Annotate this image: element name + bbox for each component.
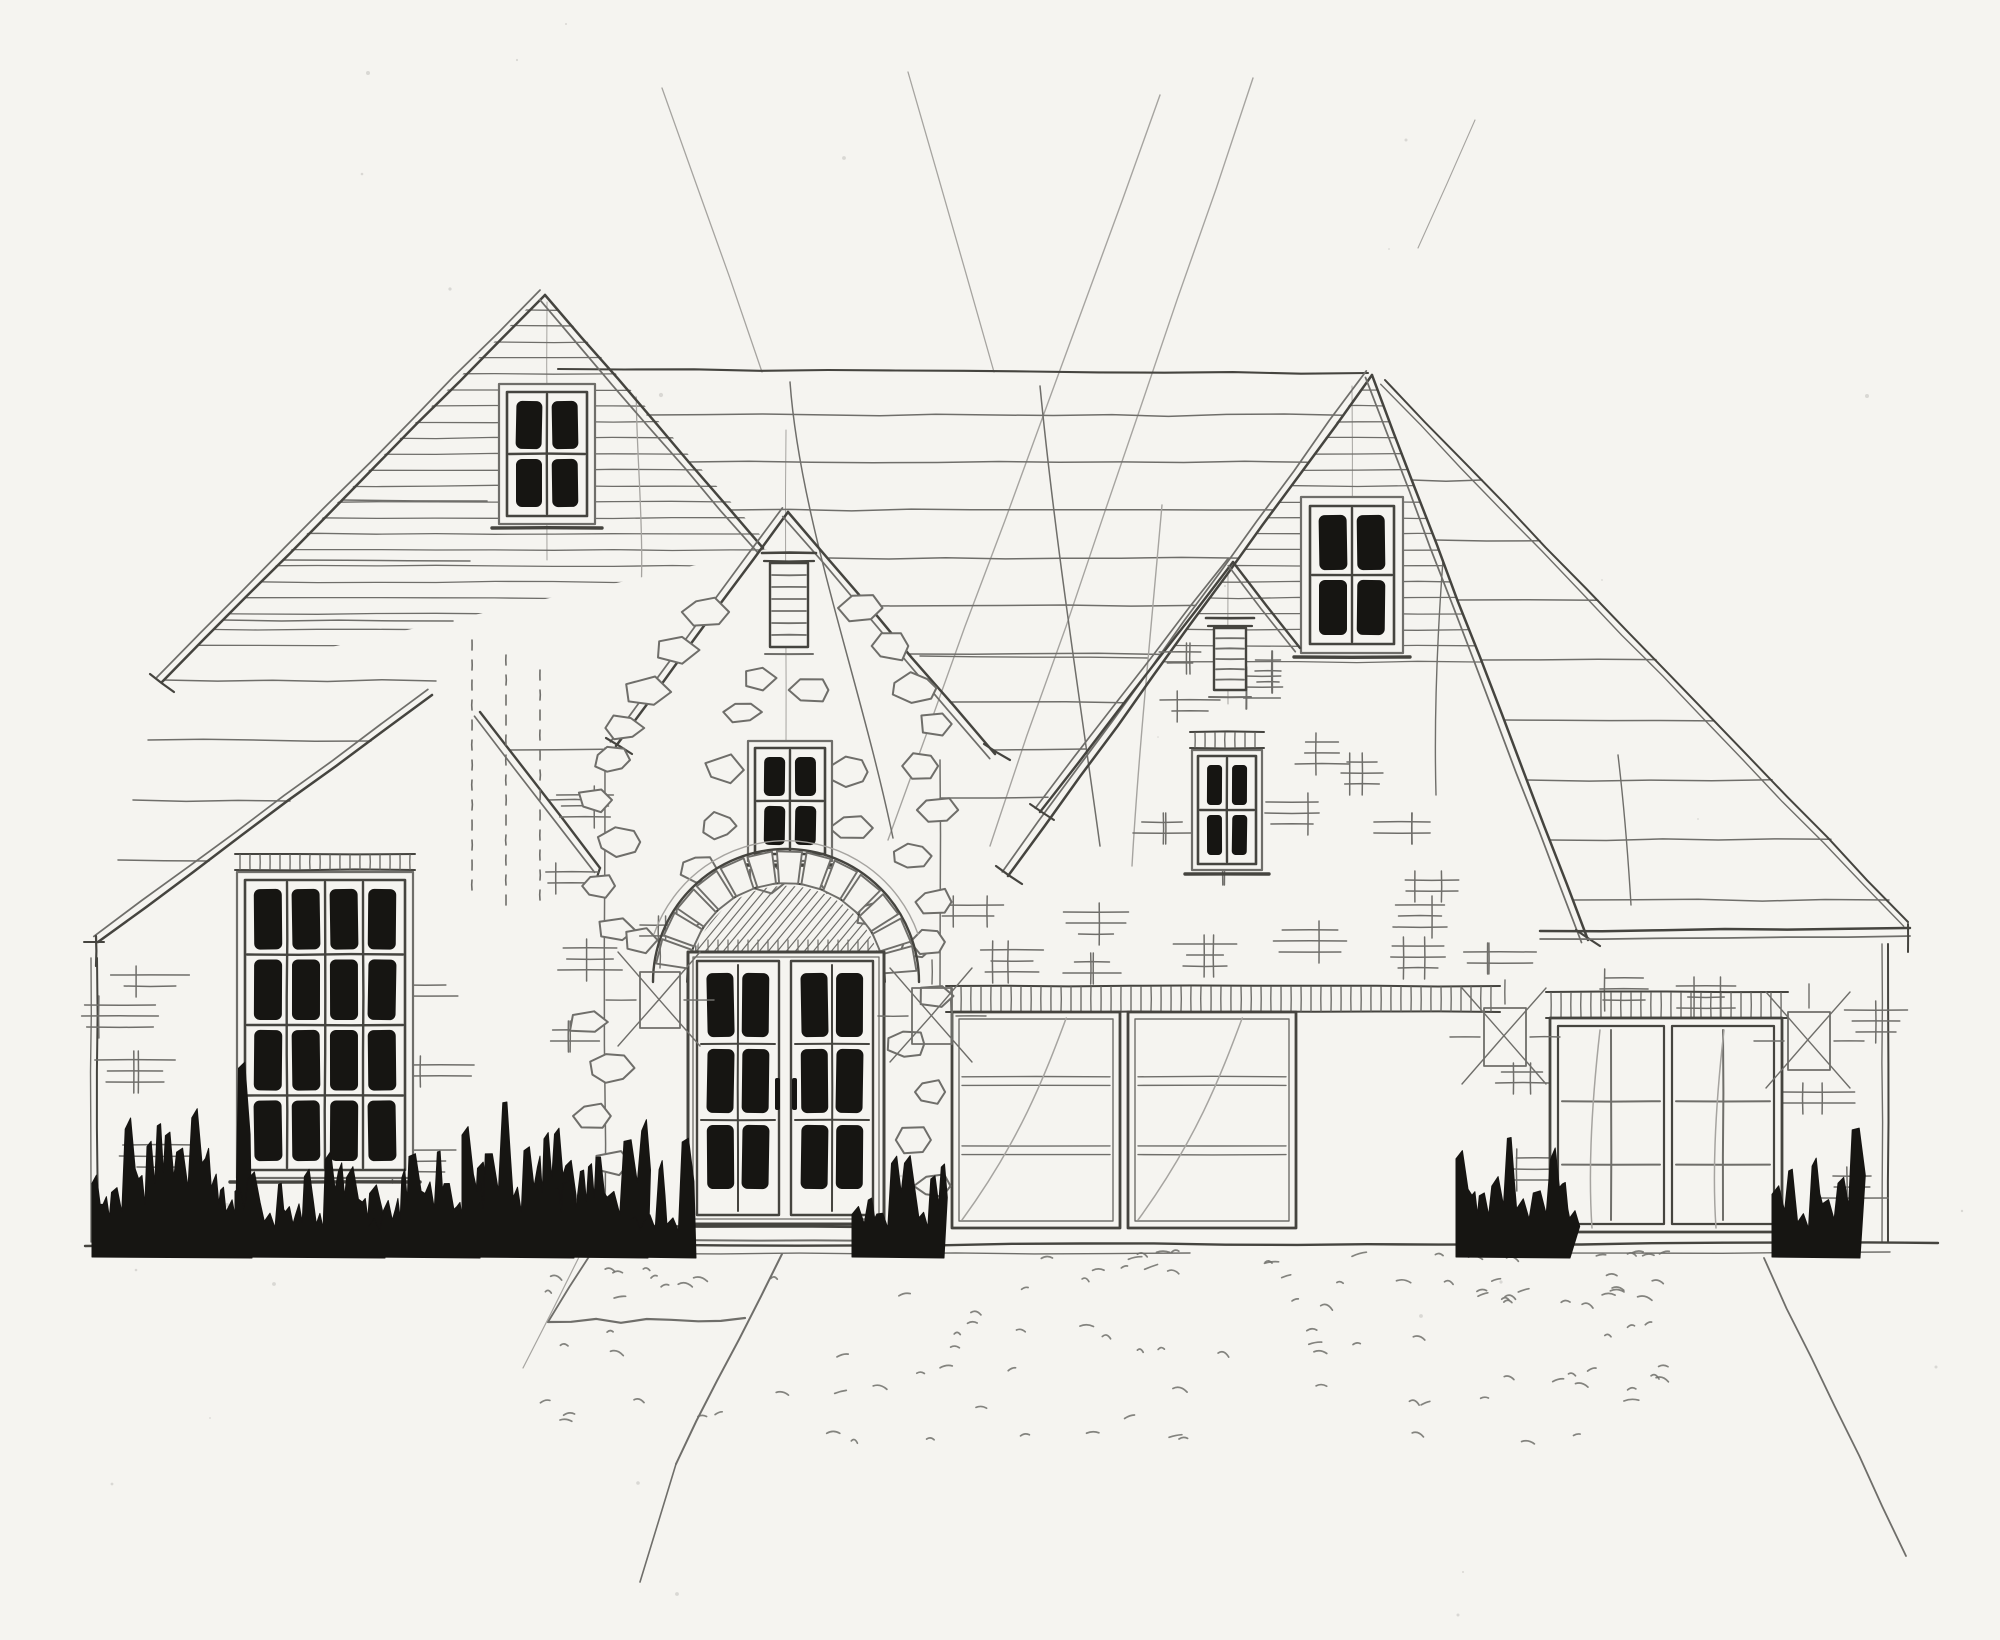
left-wing-window <box>230 854 420 1182</box>
right-gable-window <box>1294 497 1410 657</box>
left-gable-window <box>492 384 602 528</box>
small-gable-louver <box>1206 618 1254 697</box>
single-garage-door <box>1550 1018 1782 1232</box>
elevation-sketch-canvas <box>0 0 2000 1640</box>
small-gable-window <box>1185 731 1269 874</box>
double-garage-left-door <box>952 1012 1120 1228</box>
double-garage-right-door <box>1128 1012 1296 1228</box>
center-gable-louver <box>762 553 816 655</box>
paper-background <box>0 0 2000 1640</box>
entry-double-door <box>688 952 884 1224</box>
center-gable-window <box>741 741 839 865</box>
sketch-sheet <box>0 0 2000 1640</box>
